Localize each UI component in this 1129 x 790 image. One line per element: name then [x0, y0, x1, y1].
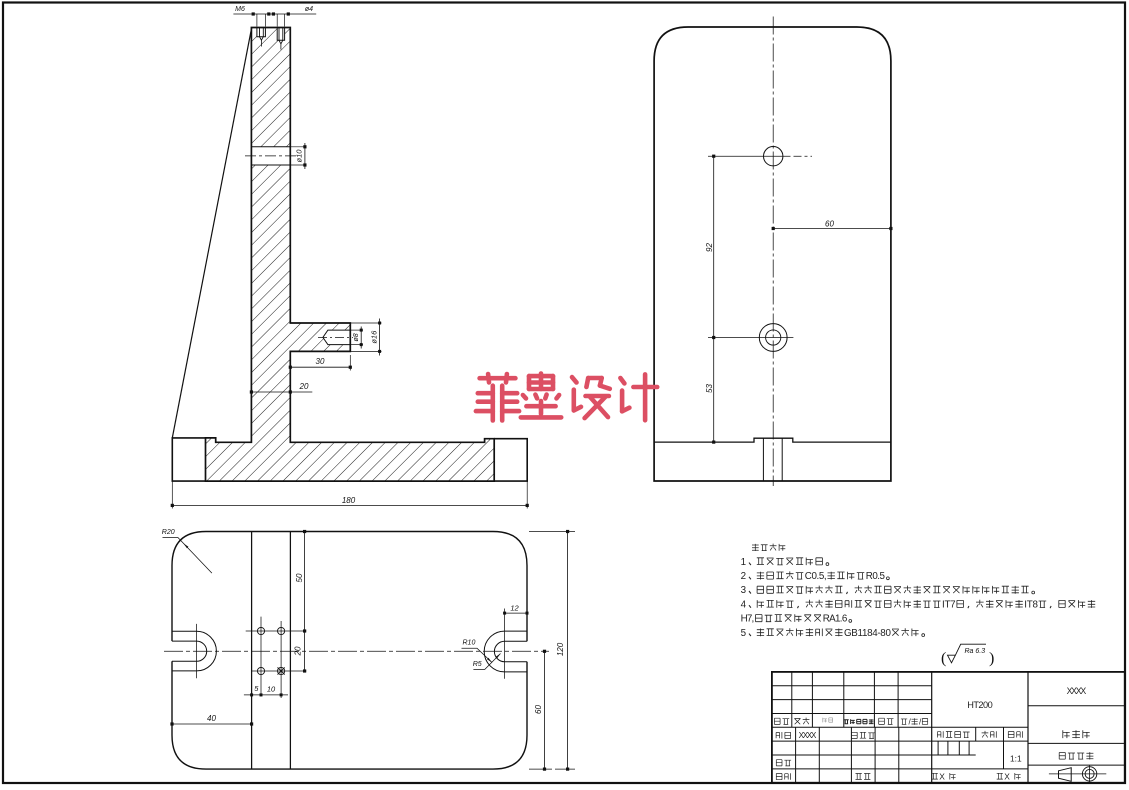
svg-text:2: 2 — [741, 571, 746, 582]
svg-text:92: 92 — [705, 243, 714, 252]
svg-text:ø4: ø4 — [305, 6, 313, 13]
svg-text:IT8: IT8 — [1024, 599, 1038, 610]
svg-text:Ra 6.3: Ra 6.3 — [965, 648, 986, 655]
svg-text:IT7: IT7 — [942, 599, 956, 610]
svg-text:50: 50 — [295, 573, 304, 582]
svg-text:X: X — [1004, 771, 1010, 781]
svg-text:20: 20 — [294, 646, 303, 656]
svg-text:5: 5 — [741, 628, 747, 639]
svg-text:XXXX: XXXX — [1067, 686, 1087, 696]
svg-text:R10: R10 — [463, 639, 476, 646]
svg-text:10: 10 — [267, 684, 276, 693]
svg-text:120: 120 — [556, 642, 565, 656]
svg-text:3: 3 — [741, 585, 747, 596]
svg-text:ø10: ø10 — [294, 149, 303, 163]
svg-text:40: 40 — [207, 714, 216, 723]
svg-text:GB1184-80: GB1184-80 — [844, 628, 891, 639]
svg-text:60: 60 — [534, 705, 543, 714]
svg-text:M6: M6 — [235, 6, 245, 13]
svg-text:ø16: ø16 — [369, 330, 378, 344]
svg-text:(: ( — [941, 650, 946, 667]
svg-text:): ) — [989, 650, 994, 667]
svg-text:RA1.6: RA1.6 — [823, 614, 848, 625]
svg-text:12: 12 — [510, 603, 519, 612]
svg-text:1: 1 — [741, 557, 746, 568]
svg-text:ø8: ø8 — [353, 333, 360, 341]
svg-text:30: 30 — [316, 357, 325, 366]
svg-text:180: 180 — [342, 496, 356, 505]
svg-text:4: 4 — [741, 599, 747, 610]
svg-text:R0.5: R0.5 — [866, 571, 886, 582]
svg-text:R5: R5 — [473, 661, 482, 668]
svg-text:20: 20 — [299, 382, 309, 391]
svg-text:H7,: H7, — [741, 614, 755, 625]
svg-text:C0.5,: C0.5, — [805, 571, 827, 582]
svg-text:X: X — [939, 771, 945, 781]
svg-text:60: 60 — [825, 220, 834, 229]
svg-text:53: 53 — [705, 384, 714, 393]
svg-text:R20: R20 — [162, 529, 175, 536]
svg-text:HT200: HT200 — [967, 700, 993, 710]
svg-text:1:1: 1:1 — [1010, 754, 1022, 764]
svg-text:XXXX: XXXX — [799, 731, 817, 740]
